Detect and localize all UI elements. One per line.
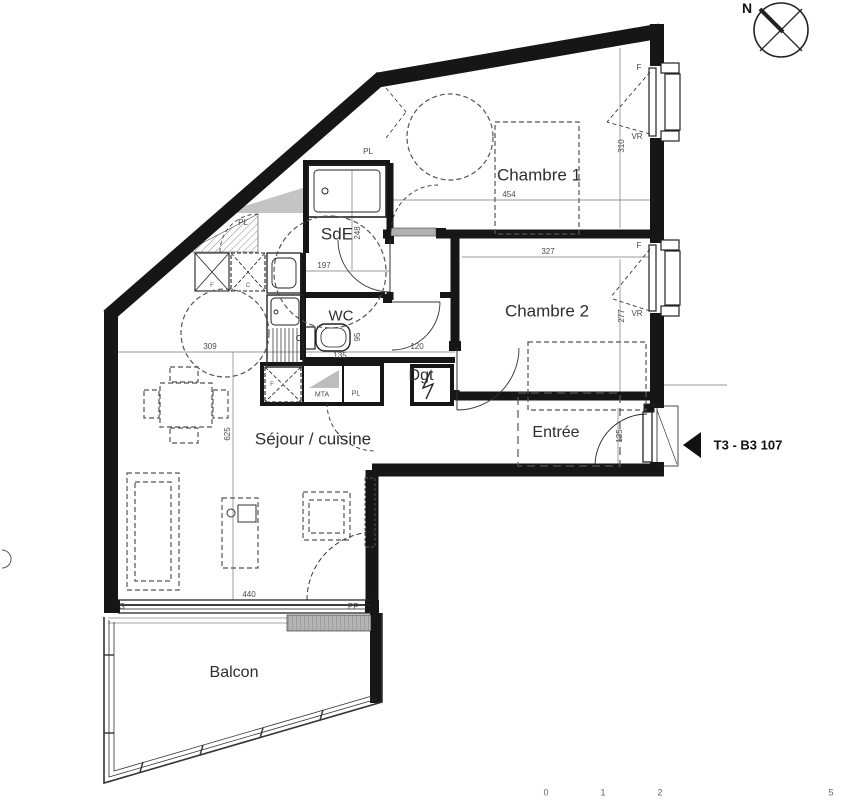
dim-entry-width: 125 xyxy=(616,429,624,442)
dim-sde-depth: 248 xyxy=(354,226,362,239)
room-label-chambre1: Chambre 1 xyxy=(497,167,581,184)
dim-kitchen-width: 309 xyxy=(203,343,216,351)
dim-sejour-depth: 625 xyxy=(224,427,232,440)
tv-unit-items xyxy=(227,505,256,522)
dim-chambre1-depth: 310 xyxy=(618,139,626,152)
dim-dgt-width: 120 xyxy=(410,343,423,351)
closet-label-mta: MTA xyxy=(315,392,329,399)
window1-shutter-label: VR xyxy=(631,133,642,141)
room-label-sde: SdE xyxy=(321,226,353,243)
facade-sejour xyxy=(108,532,380,631)
facade-s-label: S xyxy=(119,603,124,611)
window-chambre1 xyxy=(607,63,680,141)
closet-label-pl-hall: PL xyxy=(352,391,361,398)
window2-shutter-label: VR xyxy=(631,310,642,318)
floor-plan-svg xyxy=(0,0,848,800)
entry-door xyxy=(595,404,678,466)
room-label-chambre2: Chambre 2 xyxy=(505,303,589,320)
room-label-entree: Entrée xyxy=(532,425,579,441)
dim-chambre2-width: 327 xyxy=(541,248,554,256)
room-label-dgt: Dgt xyxy=(409,368,434,384)
north-label: N xyxy=(742,1,752,15)
floor-plan: Chambre 1 Chambre 2 SdE WC Dgt Entrée Sé… xyxy=(0,0,848,800)
facade-pf-label: PF xyxy=(348,603,358,611)
scale-tick-1: 1 xyxy=(600,789,605,798)
room-label-balcon: Balcon xyxy=(210,665,259,681)
room-label-wc: WC xyxy=(329,309,354,324)
scale-tick-0: 0 xyxy=(543,789,548,798)
unit-label: T3 - B3 107 xyxy=(714,439,783,452)
scale-tick-5: 5 xyxy=(828,789,833,798)
unit-arrow-icon xyxy=(683,432,701,458)
balcony-railing xyxy=(104,613,382,783)
appliance-label-f-top: F xyxy=(210,283,214,289)
appliance-label-c-top: C xyxy=(246,283,250,289)
dim-chambre1-width: 454 xyxy=(502,191,515,199)
closet-label-pl-shower: PL xyxy=(363,148,373,156)
compass-icon xyxy=(754,3,808,57)
dim-wc-depth: 95 xyxy=(354,333,362,342)
dim-sde-width: 197 xyxy=(317,262,330,270)
room-label-sejour: Séjour / cuisine xyxy=(255,431,371,448)
closet-label-pl-corner: PL xyxy=(238,219,248,227)
dim-chambre2-depth: 277 xyxy=(618,309,626,322)
window2-type-label: F xyxy=(637,242,642,250)
window-chambre2 xyxy=(610,240,680,316)
dim-sejour-width: 440 xyxy=(242,591,255,599)
appliance-label-f-low: F xyxy=(270,382,274,388)
scale-tick-2: 2 xyxy=(657,789,662,798)
dim-wc-width: 135 xyxy=(333,352,346,360)
window1-type-label: F xyxy=(637,64,642,72)
